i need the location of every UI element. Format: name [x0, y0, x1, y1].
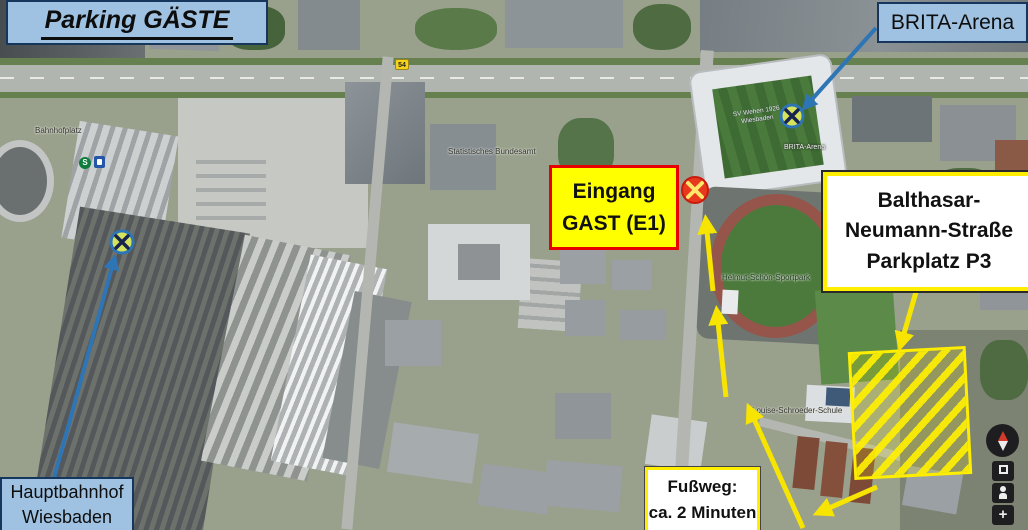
p3-line2: Neumann-Straße	[845, 216, 1013, 246]
map-parking-rows	[196, 150, 266, 230]
map-track-stand	[721, 290, 738, 315]
map-office-building	[430, 124, 496, 190]
map-apartment	[543, 460, 623, 512]
parking-gaeste-title-box: Parking GÄSTE	[6, 0, 268, 45]
p3-line3: Parkplatz P3	[867, 247, 992, 277]
fussweg-box: Fußweg: ca. 2 Minuten	[645, 467, 760, 530]
map-label-schule: Louise-Schroeder-Schule	[752, 406, 842, 415]
map-apartment	[555, 393, 611, 439]
map-building	[298, 0, 360, 50]
eingang-line2: GAST (E1)	[562, 208, 666, 240]
fussweg-line2: ca. 2 Minuten	[649, 500, 757, 526]
parking-gaeste-title: Parking GÄSTE	[41, 6, 234, 40]
transit-stop-icon[interactable]	[94, 156, 105, 168]
map-apartment	[387, 422, 479, 483]
map-frame-button[interactable]	[992, 461, 1014, 481]
sbahn-icon[interactable]: S	[79, 157, 91, 169]
pegman-body	[999, 493, 1007, 499]
p3-line1: Balthasar-	[878, 186, 981, 216]
map-apartment	[477, 463, 552, 514]
map-apartment	[612, 260, 652, 290]
map-label-stadium: BRITA-Arena	[784, 144, 825, 151]
plus-icon: +	[992, 505, 1014, 525]
brita-arena-label: BRITA-Arena	[891, 11, 1014, 35]
map-label-bundesamt: Statistisches Bundesamt	[448, 147, 536, 156]
compass-needle-north	[998, 431, 1008, 441]
map-canvas[interactable]: SV Wehen 1926 Wiesbaden Bahnhofplatz Sta…	[0, 0, 1028, 530]
eingang-gast-box: Eingang GAST (E1)	[549, 165, 679, 250]
compass-needle-south	[998, 441, 1008, 451]
map-round-building	[0, 140, 54, 222]
map-label-bahnhofplatz: Bahnhofplatz	[35, 126, 82, 135]
hauptbahnhof-line1: Hauptbahnhof	[10, 480, 123, 505]
map-label-sportpark: Helmut-Schön-Sportpark	[722, 273, 810, 282]
map-apartment	[560, 250, 606, 284]
map-building	[505, 0, 623, 48]
compass-icon[interactable]	[986, 424, 1019, 457]
hauptbahnhof-line2: Wiesbaden	[22, 505, 112, 530]
eingang-line1: Eingang	[573, 176, 656, 208]
brita-arena-label-box: BRITA-Arena	[877, 2, 1028, 43]
road-number-badge: 54	[395, 59, 409, 70]
map-apartment	[385, 320, 441, 366]
map-brown-house	[792, 436, 819, 490]
pegman-icon	[1000, 486, 1006, 492]
p3-parking-hatched-area	[848, 346, 973, 480]
map-apartment	[620, 310, 666, 340]
map-building	[852, 96, 932, 142]
pegman-button[interactable]	[992, 483, 1014, 503]
map-frame-icon	[999, 465, 1008, 474]
map-road-dashes	[0, 77, 1028, 79]
map-brown-house	[820, 441, 848, 498]
fussweg-line1: Fußweg:	[668, 474, 738, 500]
map-trees	[415, 8, 497, 50]
map-apartment	[565, 300, 605, 336]
p3-parkplatz-box: Balthasar- Neumann-Straße Parkplatz P3	[823, 172, 1028, 291]
map-school-solar-roof	[826, 387, 851, 406]
hauptbahnhof-label-box: Hauptbahnhof Wiesbaden	[0, 477, 134, 530]
map-courtyard	[458, 244, 500, 280]
map-road-median	[0, 58, 1028, 65]
transit-glyph	[97, 159, 102, 165]
map-trees	[633, 4, 691, 50]
zoom-in-button[interactable]: +	[992, 505, 1014, 525]
map-trees	[980, 340, 1028, 400]
